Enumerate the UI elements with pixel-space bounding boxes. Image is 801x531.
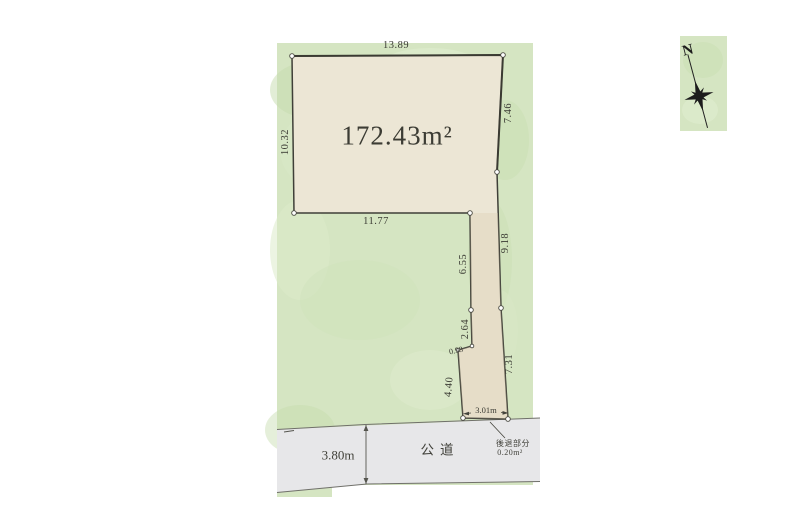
dim-top-label: 13.89 bbox=[383, 41, 409, 52]
dim-right-mid-label: 9.18 bbox=[501, 233, 512, 253]
setback-area-label: 0.20m² bbox=[497, 449, 523, 457]
dim-left-label: 10.32 bbox=[281, 129, 292, 155]
site-plan-drawing bbox=[0, 0, 801, 531]
dim-flag-bottom-label: 3.01m bbox=[475, 406, 497, 415]
dim-bottom-label: 11.77 bbox=[363, 217, 389, 228]
setback-name-label: 後退部分 bbox=[496, 440, 530, 448]
road-name-label: 公道 bbox=[421, 443, 460, 457]
site-plan-canvas: 172.43m² 13.89 10.32 7.46 9.18 7.31 11.7… bbox=[0, 0, 801, 531]
dim-flag-left-lower-label: 4.40 bbox=[444, 376, 456, 397]
dim-right-upper-label: 7.46 bbox=[504, 103, 515, 123]
dim-flag-left-upper-label: 6.55 bbox=[459, 254, 470, 274]
parcel-area-label: 172.43m² bbox=[341, 123, 452, 150]
dim-right-lower-label: 7.31 bbox=[505, 354, 516, 374]
road-width-label: 3.80m bbox=[322, 449, 355, 462]
dim-flag-left-mid-label: 2.64 bbox=[461, 319, 472, 339]
